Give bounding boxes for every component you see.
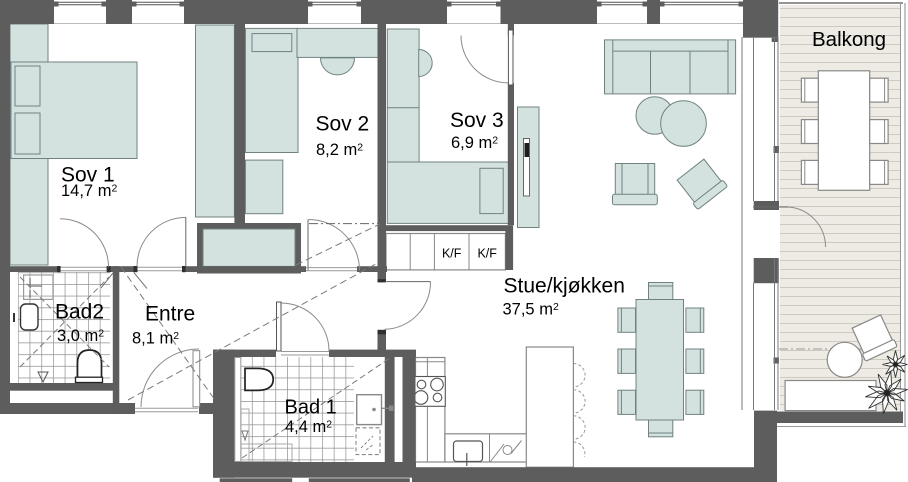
svg-text:8,2 m2: 8,2 m2 [316,141,363,159]
svg-text:K/F: K/F [442,247,462,261]
svg-text:14,7 m2: 14,7 m2 [61,182,117,200]
svg-text:Bad 1: Bad 1 [285,397,337,419]
svg-text:Entre: Entre [145,303,195,326]
svg-text:Bad2: Bad2 [55,300,104,323]
svg-text:Sov 3: Sov 3 [450,109,504,132]
svg-text:Sov 2: Sov 2 [316,113,370,136]
svg-text:Balkong: Balkong [812,28,886,51]
svg-text:Stue/kjøkken: Stue/kjøkken [504,275,625,298]
svg-text:K/F: K/F [477,247,497,261]
svg-text:37,5 m2: 37,5 m2 [503,301,559,319]
svg-text:4,4 m2: 4,4 m2 [285,418,332,436]
svg-text:6,9 m2: 6,9 m2 [451,134,498,152]
svg-text:8,1 m2: 8,1 m2 [132,330,179,348]
svg-text:3,0 m2: 3,0 m2 [57,327,104,345]
